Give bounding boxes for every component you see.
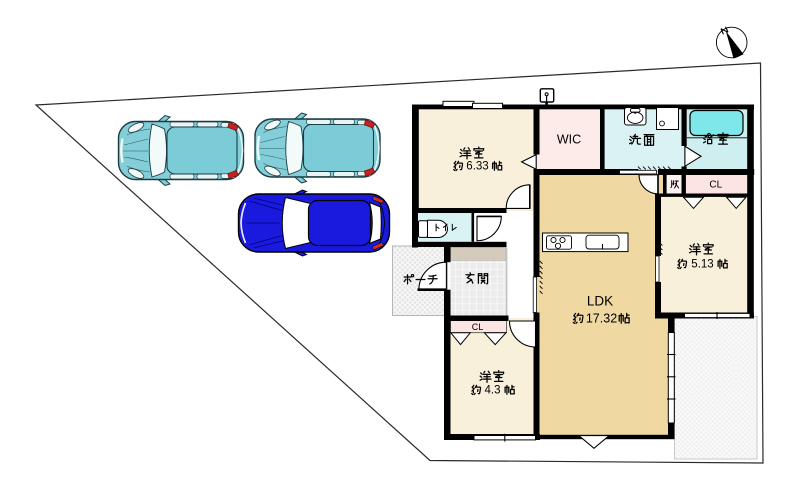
- svg-text:4.3: 4.3: [485, 385, 501, 397]
- svg-text:5.13: 5.13: [691, 259, 713, 271]
- svg-text:CL: CL: [472, 322, 484, 332]
- svg-text:LDK: LDK: [587, 294, 613, 309]
- svg-text:CL: CL: [709, 180, 722, 191]
- svg-text:WIC: WIC: [557, 133, 581, 147]
- svg-text:17.32: 17.32: [586, 312, 617, 326]
- svg-text:6.33: 6.33: [466, 161, 488, 173]
